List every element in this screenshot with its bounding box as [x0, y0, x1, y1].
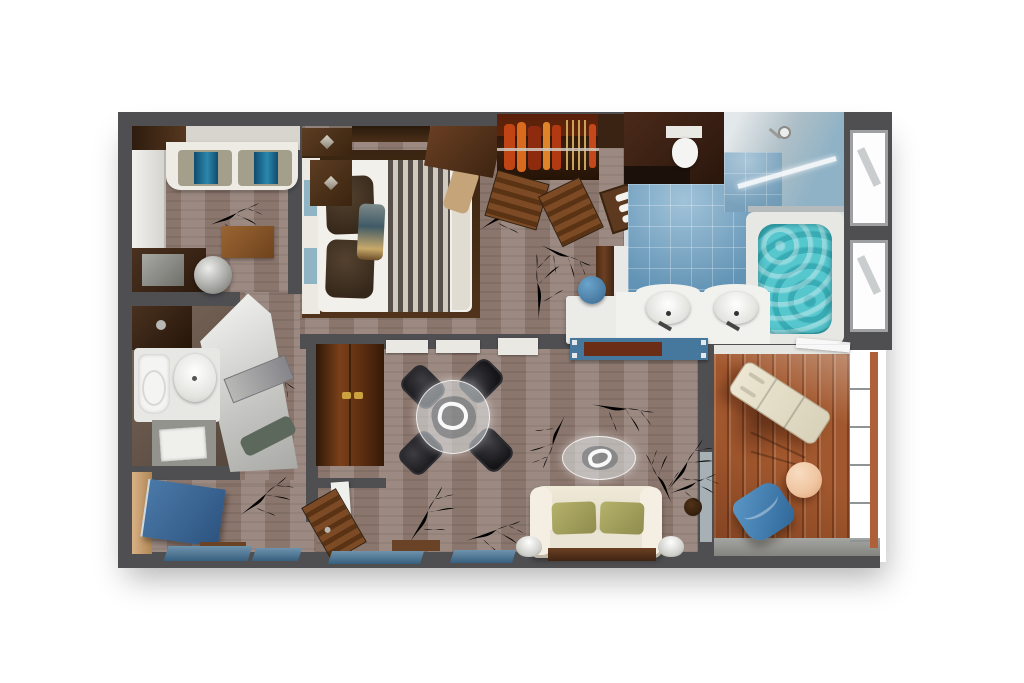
washbasin — [174, 354, 216, 402]
bathroom-sink — [646, 292, 690, 324]
striped-bed-runner — [388, 160, 450, 312]
sink-drain — [734, 311, 739, 316]
wall-shelf — [436, 340, 480, 353]
lounge-headrest-slot — [739, 385, 756, 398]
bedroom-top-wood — [352, 126, 430, 142]
sink-drain — [666, 311, 671, 316]
sofa-green-cushion — [599, 501, 644, 535]
window-glass — [450, 550, 516, 563]
round-stool — [194, 256, 232, 294]
window-glass — [164, 546, 253, 561]
headboard-insert — [304, 248, 317, 284]
nightstand-chest — [310, 160, 352, 206]
toilet — [138, 354, 170, 414]
desk-leg — [572, 340, 577, 345]
floor-plan — [0, 0, 1024, 683]
console-desk — [570, 338, 708, 360]
storage-unit-tray — [142, 254, 184, 286]
balcony-round-table — [786, 462, 822, 498]
lounge-seam — [755, 379, 777, 412]
hanging-garment — [543, 122, 550, 170]
window-glass — [328, 551, 424, 564]
wall-second-bedroom-bottom — [118, 292, 240, 306]
desk-leg — [572, 353, 577, 358]
carpet-branch-motif — [235, 466, 306, 528]
hanging-garment — [504, 124, 515, 170]
lounge-headrest-slot — [748, 372, 765, 385]
daybed-cushion — [238, 150, 292, 186]
window-glass — [252, 548, 302, 561]
nightstand-chest — [302, 128, 352, 156]
master-toilet-tank — [666, 126, 702, 138]
window-sash — [857, 147, 881, 187]
clothes-hanger — [566, 120, 568, 170]
console-desk-wood-inset — [584, 342, 662, 356]
clothes-hanger — [578, 120, 580, 170]
guest-shower-tray — [159, 426, 207, 461]
tall-wood-cabinet — [316, 344, 384, 466]
glass-railing — [850, 352, 870, 548]
desk-leg — [701, 340, 706, 345]
bathroom-window — [850, 240, 888, 332]
vanity-stool — [578, 276, 606, 304]
diamond-knob — [324, 176, 338, 190]
table-lamp — [516, 536, 542, 557]
sofa-green-cushion — [551, 501, 596, 535]
wall-bottom-balcony — [712, 556, 880, 568]
desk-leg — [701, 353, 706, 358]
sofa-console — [548, 548, 656, 561]
window-wood-sill — [392, 540, 440, 551]
clothes-hanger — [584, 120, 586, 170]
door-handle — [323, 526, 331, 534]
bathroom-sink — [714, 292, 758, 324]
wardrobe-rod — [497, 148, 599, 151]
guest-bath-faucet — [156, 320, 166, 330]
lounge-seam — [783, 397, 805, 430]
accent-pillow — [357, 203, 386, 260]
railing-cap — [870, 352, 878, 548]
master-toilet — [672, 138, 698, 168]
window-sash — [857, 255, 881, 295]
wall-counter — [498, 338, 538, 355]
toilet-compartment-counter — [624, 166, 690, 184]
cabinet-handle — [354, 392, 363, 399]
hanging-garment — [517, 122, 526, 172]
side-table — [222, 226, 274, 258]
diamond-knob — [320, 135, 334, 149]
hanging-garment — [589, 124, 596, 168]
table-lamp — [658, 536, 684, 557]
wall-shelf — [386, 340, 428, 353]
toilet-seat — [142, 370, 166, 406]
daybed-cushion — [178, 150, 232, 186]
entry-door — [140, 479, 225, 547]
bathroom-window — [850, 130, 888, 226]
wall-left — [118, 112, 132, 568]
daybed-cushion-stripe — [194, 152, 218, 184]
cabinet-handle — [342, 392, 351, 399]
washbasin-drain — [192, 376, 197, 381]
clothes-hanger — [572, 120, 574, 170]
cabinet-seam — [349, 344, 351, 466]
daybed-cushion-stripe — [254, 152, 278, 184]
